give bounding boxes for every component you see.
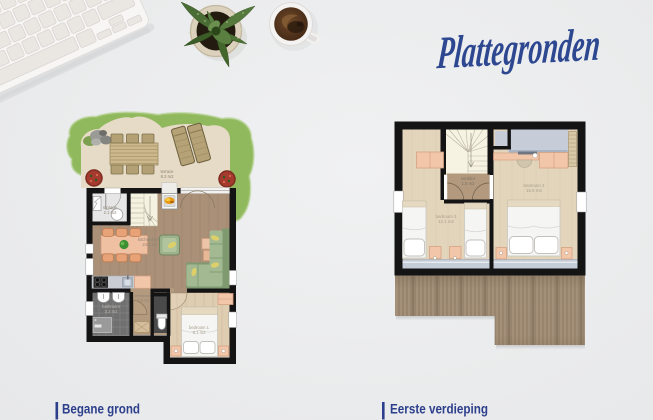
svg-text:8.1 m2: 8.1 m2 xyxy=(193,330,206,335)
svg-text:Plattegronden: Plattegronden xyxy=(435,19,603,79)
svg-text:3.3 m2: 3.3 m2 xyxy=(137,298,150,303)
svg-text:12.1 m2: 12.1 m2 xyxy=(438,219,454,224)
svg-text:8.2 m2: 8.2 m2 xyxy=(161,174,174,179)
svg-text:2.1 m2: 2.1 m2 xyxy=(104,210,117,215)
svg-text:1.5 m2: 1.5 m2 xyxy=(462,181,475,186)
svg-text:15.9 m2: 15.9 m2 xyxy=(526,188,542,193)
svg-text:3.2 m2: 3.2 m2 xyxy=(105,309,118,314)
svg-text:24.2 m2: 24.2 m2 xyxy=(142,242,158,247)
svg-text:Eerste verdieping: Eerste verdieping xyxy=(390,401,488,417)
svg-text:Begane grond: Begane grond xyxy=(62,401,140,417)
